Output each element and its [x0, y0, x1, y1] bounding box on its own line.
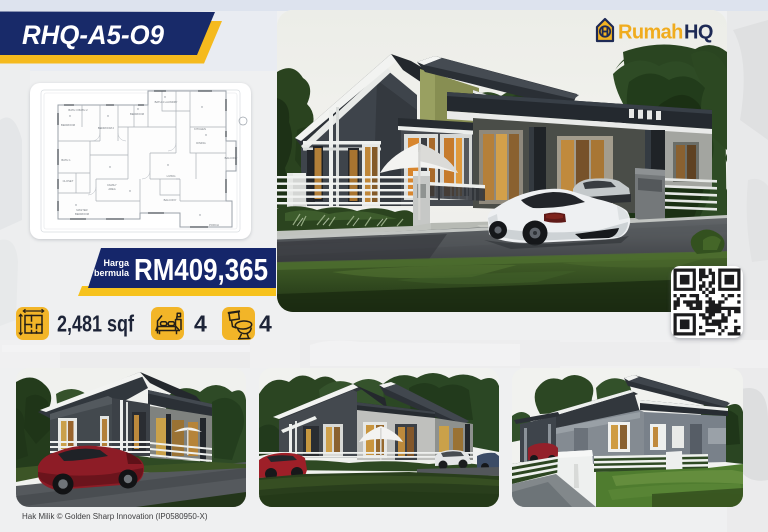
svg-text:2,481 sqf: 2,481 sqf: [57, 311, 134, 337]
svg-text:4: 4: [194, 311, 207, 337]
svg-text:BALCONY: BALCONY: [164, 198, 177, 202]
svg-text:BATH 1: BATH 1: [61, 158, 71, 162]
svg-text:4: 4: [259, 311, 272, 337]
svg-text:MASTER: MASTER: [76, 208, 87, 212]
svg-text:DINING: DINING: [196, 141, 205, 145]
svg-text:BATH 3 BATH 2: BATH 3 BATH 2: [68, 108, 88, 112]
svg-text:BEDROOM 2: BEDROOM 2: [98, 126, 115, 130]
svg-text:bermula: bermula: [94, 268, 130, 278]
svg-text:PORCH: PORCH: [209, 223, 219, 227]
svg-text:CLOSET: CLOSET: [63, 179, 74, 183]
svg-text:Harga: Harga: [103, 258, 130, 268]
svg-text:FAMILY: FAMILY: [107, 183, 117, 187]
svg-text:HQ: HQ: [684, 22, 713, 44]
svg-text:Rumah: Rumah: [618, 22, 683, 44]
svg-text:LIVING: LIVING: [167, 174, 176, 178]
svg-text:AREA: AREA: [108, 187, 116, 191]
svg-text:BEDROOM: BEDROOM: [75, 212, 90, 216]
svg-text:RHQ-A5-O9: RHQ-A5-O9: [22, 20, 164, 50]
svg-text:BEDROOM: BEDROOM: [61, 123, 76, 127]
svg-text:RM409,365: RM409,365: [134, 252, 268, 287]
svg-text:BATH 4 LAUNDRY: BATH 4 LAUNDRY: [155, 100, 178, 104]
svg-text:KITCHEN: KITCHEN: [194, 127, 206, 131]
svg-text:BEDROOM: BEDROOM: [130, 112, 145, 116]
svg-text:BALCONY: BALCONY: [225, 156, 238, 160]
